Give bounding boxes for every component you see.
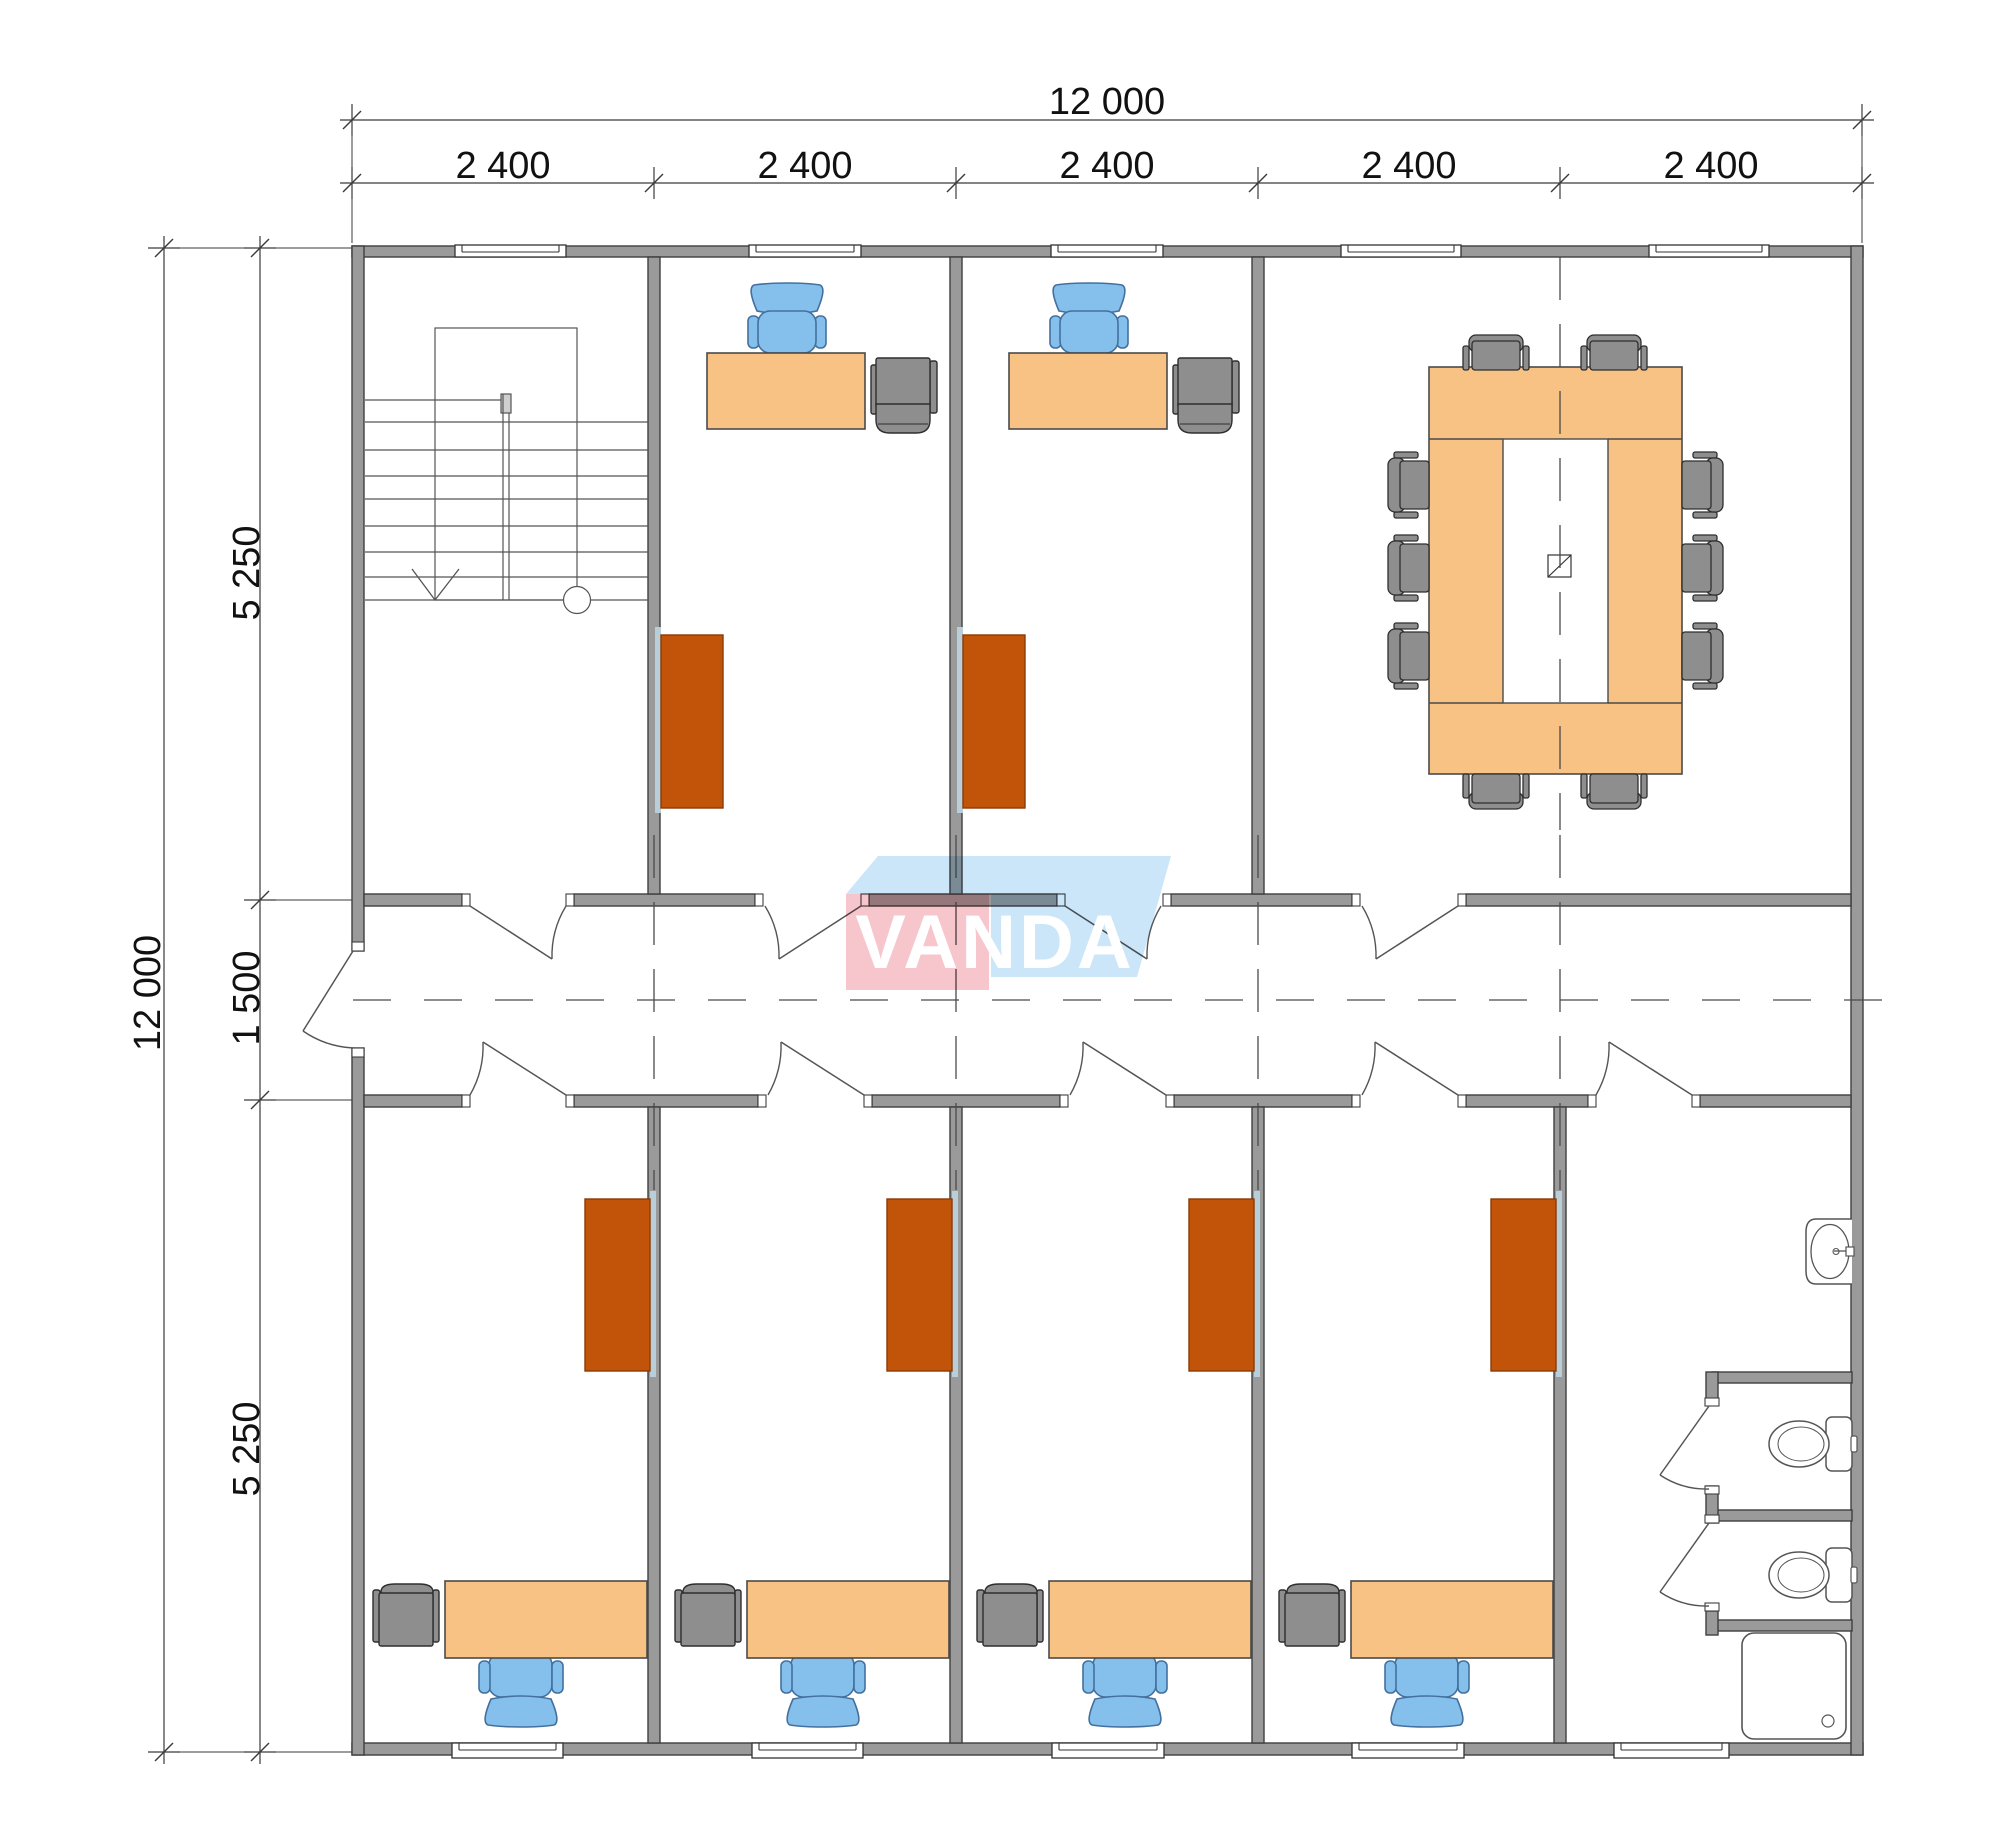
svg-text:5 250: 5 250 <box>226 525 268 620</box>
svg-text:2 400: 2 400 <box>1663 145 1758 187</box>
svg-text:2 400: 2 400 <box>455 145 550 187</box>
svg-text:2 400: 2 400 <box>1059 145 1154 187</box>
svg-text:12 000: 12 000 <box>127 935 169 1051</box>
svg-text:VANDA: VANDA <box>855 900 1135 985</box>
svg-text:12 000: 12 000 <box>1049 81 1165 123</box>
svg-text:2 400: 2 400 <box>757 145 852 187</box>
svg-text:5 250: 5 250 <box>226 1401 268 1496</box>
svg-text:2 400: 2 400 <box>1361 145 1456 187</box>
svg-text:1 500: 1 500 <box>226 950 268 1045</box>
